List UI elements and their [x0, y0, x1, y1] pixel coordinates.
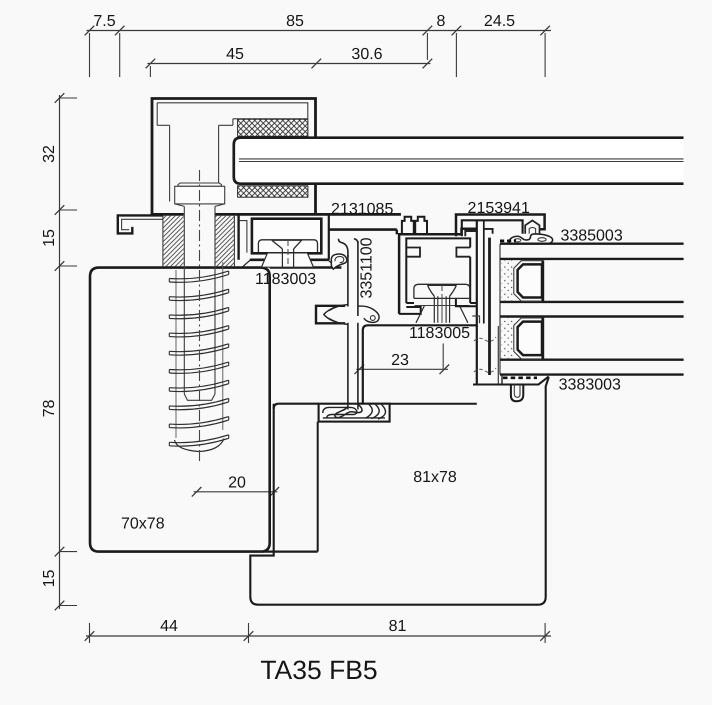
svg-text:78: 78: [41, 400, 58, 418]
svg-text:2131085: 2131085: [331, 201, 393, 218]
svg-text:23: 23: [391, 352, 409, 369]
svg-text:81: 81: [389, 618, 407, 635]
svg-text:81x78: 81x78: [413, 469, 457, 486]
svg-text:1183003: 1183003: [255, 271, 316, 288]
svg-text:7.5: 7.5: [93, 13, 115, 30]
svg-text:8: 8: [437, 13, 446, 30]
svg-text:20: 20: [228, 475, 246, 492]
svg-text:85: 85: [286, 13, 304, 30]
svg-text:3383003: 3383003: [559, 377, 621, 394]
svg-text:1183005: 1183005: [409, 325, 470, 342]
svg-text:44: 44: [160, 618, 178, 635]
svg-text:45: 45: [226, 46, 244, 63]
svg-text:70x78: 70x78: [121, 516, 165, 533]
svg-text:TA35 FB5: TA35 FB5: [260, 655, 377, 685]
svg-text:15: 15: [41, 229, 58, 247]
svg-text:3385003: 3385003: [560, 228, 622, 245]
svg-text:24.5: 24.5: [484, 13, 515, 30]
svg-text:3351100: 3351100: [359, 237, 376, 298]
svg-text:2153941: 2153941: [468, 200, 530, 217]
svg-text:32: 32: [41, 145, 58, 163]
svg-text:15: 15: [41, 570, 58, 588]
svg-text:30.6: 30.6: [351, 46, 382, 63]
